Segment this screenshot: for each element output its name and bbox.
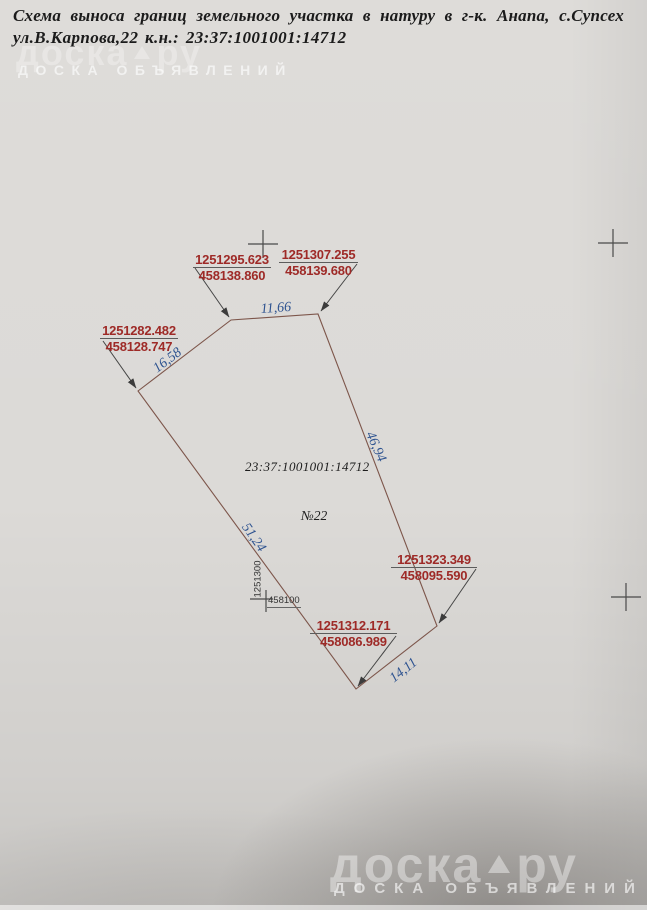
grid-label-y: 458100 bbox=[267, 595, 301, 608]
coord-y: 458086.989 bbox=[310, 634, 397, 648]
grid-label-x: 1251300 bbox=[253, 561, 264, 598]
coord-x: 1251323.349 bbox=[391, 553, 477, 568]
cadastral-number-label: 23:37:1001001:14712 bbox=[245, 459, 370, 475]
plot-number-label: №22 bbox=[301, 508, 327, 524]
coord-y: 458138.860 bbox=[193, 268, 271, 282]
scanned-survey-page: доска ру ДОСКА ОБЪЯВЛЕНИЙ доска ру ДОСКА… bbox=[0, 0, 647, 910]
coord-y: 458095.590 bbox=[391, 568, 477, 582]
grid-cross-icon bbox=[611, 583, 641, 611]
coord-x: 1251312.171 bbox=[310, 619, 397, 634]
coord-y: 458139.680 bbox=[279, 263, 358, 277]
title-line-1: Схема выноса границ земельного участка в… bbox=[13, 5, 641, 27]
document-title: Схема выноса границ земельного участка в… bbox=[13, 5, 641, 49]
point-coords-2: 1251307.255 458139.680 bbox=[279, 248, 358, 277]
survey-drawing bbox=[0, 0, 647, 910]
coord-x: 1251307.255 bbox=[279, 248, 358, 263]
point-coords-5: 1251312.171 458086.989 bbox=[310, 619, 397, 648]
point-coords-1: 1251295.623 458138.860 bbox=[193, 253, 271, 282]
grid-cross-icon bbox=[598, 229, 628, 257]
title-line-2: ул.В.Карпова,22 к.н.: 23:37:1001001:1471… bbox=[13, 27, 641, 49]
coord-x: 1251295.623 bbox=[193, 253, 271, 268]
coord-x: 1251282.482 bbox=[100, 324, 178, 339]
point-coords-3: 1251282.482 458128.747 bbox=[100, 324, 178, 353]
point-coords-4: 1251323.349 458095.590 bbox=[391, 553, 477, 582]
edge-length-top: 11,66 bbox=[260, 300, 292, 318]
